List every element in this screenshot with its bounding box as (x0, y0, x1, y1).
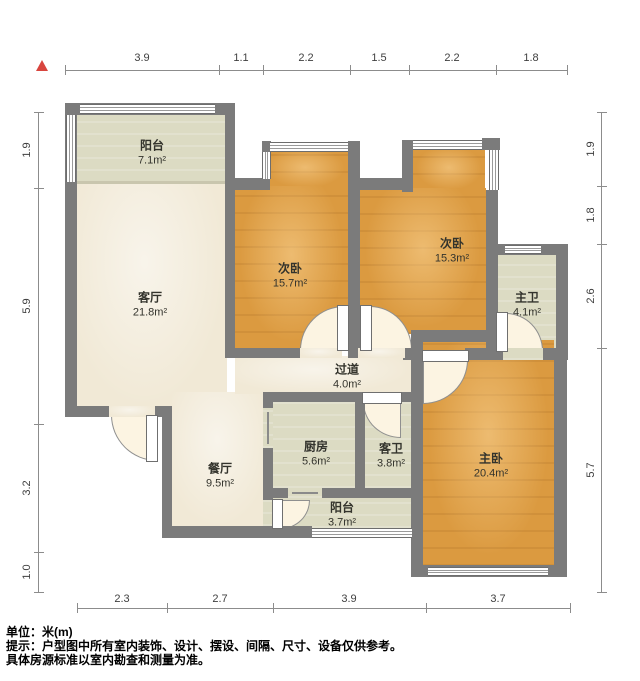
wall-bedroom-left-top (225, 178, 270, 190)
dim-tick (77, 603, 78, 613)
dim-tick (263, 65, 264, 75)
wall-master-top-a (403, 348, 423, 360)
floor-bedroom-left-bay (262, 151, 348, 190)
master-bath-door-leaf (496, 312, 508, 352)
floor-dining-room (172, 392, 273, 528)
wall-kitchen-bottom-left (263, 488, 290, 498)
dim-tick (34, 112, 44, 113)
room-area: 3.7m² (328, 516, 356, 530)
dim-left-2: 3.2 (21, 473, 33, 503)
wall-dining-bottom (162, 526, 312, 538)
dim-bottom-0: 2.3 (114, 593, 129, 605)
wall-master-left (411, 330, 423, 577)
wall-right-upper (556, 244, 568, 360)
disclaimer-line-1: 提示：户型图中所有室内装饰、设计、摆设、间隔、尺寸、设备仅供参考。 (6, 639, 402, 653)
dim-tick (273, 603, 274, 613)
floor-hallway (235, 356, 411, 394)
dim-line-top (65, 70, 568, 71)
room-label-bedroom-right: 次卧 15.3m² (435, 237, 469, 266)
room-area: 15.7m² (273, 277, 307, 291)
floorplan-canvas: 阳台 7.1m² 客厅 21.8m² 次卧 15.7m² 次卧 15.3m² 主… (0, 0, 640, 681)
guest-bath-door-leaf (362, 392, 402, 404)
room-label-guest-bath: 客卫 3.8m² (377, 442, 405, 471)
room-name: 次卧 (435, 237, 469, 252)
room-name: 次卧 (273, 262, 307, 277)
unit-note: 单位：米(m) (6, 625, 402, 639)
dim-left-1: 5.9 (21, 291, 33, 321)
master-bedroom-door-leaf (422, 350, 469, 362)
dim-tick (167, 603, 168, 613)
dim-bottom-1: 2.7 (212, 593, 227, 605)
kitchen-slide-door-line (267, 412, 269, 444)
dim-right-3: 5.7 (585, 455, 597, 485)
dim-tick (597, 186, 607, 187)
north-arrow-icon (36, 60, 48, 71)
dim-right-1: 1.8 (585, 200, 597, 230)
window-master-bath (505, 245, 541, 254)
disclaimer-line-2: 具体房源标准以室内勘查和测量为准。 (6, 653, 402, 667)
bedroom-right-door-leaf (360, 305, 372, 351)
room-label-master-bedroom: 主卧 20.4m² (474, 452, 508, 481)
wall-bedroom-left-bottom (225, 348, 302, 358)
room-label-bedroom-left: 次卧 15.7m² (273, 262, 307, 291)
wall-kitchen-bath-divider (355, 400, 365, 488)
wall-bedrooms-divider (348, 141, 360, 358)
kitchen-balcony-door-line (292, 492, 318, 494)
wall-bay2-post-left (402, 140, 413, 192)
room-label-balcony-top: 阳台 7.1m² (138, 139, 166, 168)
dim-top-4: 2.2 (444, 52, 459, 64)
dim-tick (597, 112, 607, 113)
dim-bottom-3: 3.7 (490, 593, 505, 605)
dim-right-2: 2.6 (585, 281, 597, 311)
dim-tick (426, 603, 427, 613)
dim-left-3: 1.0 (21, 557, 33, 587)
room-area: 3.8m² (377, 457, 405, 471)
wall-master-right (554, 348, 567, 577)
dim-bottom-2: 3.9 (341, 593, 356, 605)
room-label-dining: 餐厅 9.5m² (206, 462, 234, 491)
window-bedroom-right-bay (413, 140, 482, 150)
wall-bay-gap-bottom (358, 178, 404, 190)
dim-line-left (38, 112, 39, 592)
dim-top-1: 1.1 (233, 52, 248, 64)
dim-tick (496, 65, 497, 75)
room-name: 主卫 (513, 291, 541, 306)
window-balcony-left (66, 115, 76, 182)
room-area: 9.5m² (206, 477, 234, 491)
dim-right-0: 1.9 (585, 134, 597, 164)
wall-bedroom-right-bottom (411, 330, 497, 342)
room-name: 客卫 (377, 442, 405, 457)
window-bedroom-right-bay-side (489, 150, 499, 190)
room-area: 20.4m² (474, 467, 508, 481)
dim-top-2: 2.2 (298, 52, 313, 64)
wall-kitchen-bottom-right (320, 488, 423, 498)
dim-left-0: 1.9 (21, 135, 33, 165)
floor-bedroom-right-bay (413, 150, 485, 192)
room-area: 7.1m² (138, 154, 166, 168)
room-name: 餐厅 (206, 462, 234, 477)
room-label-living: 客厅 21.8m² (133, 291, 167, 320)
room-name: 阳台 (328, 501, 356, 516)
window-bedroom-left-bay (270, 142, 348, 152)
room-name: 过道 (333, 363, 361, 378)
wall-bay2-post-right (482, 138, 500, 150)
room-name: 厨房 (302, 440, 330, 455)
window-balcony-top (80, 104, 215, 114)
dim-line-bottom (77, 608, 571, 609)
entry-door-leaf (146, 415, 158, 462)
room-area: 5.6m² (302, 455, 330, 469)
dim-tick (567, 65, 568, 75)
balcony-living-divider (77, 181, 225, 184)
master-bath-door-opening (503, 348, 543, 360)
dim-tick (34, 188, 44, 189)
wall-living-bedroom-divider (225, 103, 235, 348)
footer-notes: 单位：米(m) 提示：户型图中所有室内装饰、设计、摆设、间隔、尺寸、设备仅供参考… (6, 625, 402, 667)
dim-tick (34, 592, 44, 593)
dim-line-right (601, 112, 602, 592)
dim-top-3: 1.5 (371, 52, 386, 64)
dim-tick (34, 552, 44, 553)
window-bedroom-left-bay-side (262, 152, 271, 179)
window-balcony-bottom (312, 528, 412, 538)
wall-entry-left (65, 406, 111, 417)
room-label-balcony-bottom: 阳台 3.7m² (328, 501, 356, 530)
dim-top-5: 1.8 (523, 52, 538, 64)
wall-corridor-bottom-right (399, 392, 423, 402)
dim-top-0: 3.9 (134, 52, 149, 64)
dim-tick (219, 65, 220, 75)
room-label-kitchen: 厨房 5.6m² (302, 440, 330, 469)
bedroom-left-door-opening (300, 348, 342, 358)
dim-tick (350, 65, 351, 75)
wall-dining-left (162, 406, 172, 538)
bedroom-left-door-leaf (337, 305, 349, 351)
dim-tick (597, 592, 607, 593)
dim-tick (409, 65, 410, 75)
wall-corridor-bottom-left (263, 392, 366, 402)
room-name: 阳台 (138, 139, 166, 154)
room-name: 客厅 (133, 291, 167, 306)
room-label-master-bath: 主卫 4.1m² (513, 291, 541, 320)
balcony-bottom-door-leaf (272, 499, 283, 529)
room-area: 4.1m² (513, 306, 541, 320)
dim-tick (34, 424, 44, 425)
room-name: 主卧 (474, 452, 508, 467)
dim-tick (65, 65, 66, 75)
dim-tick (570, 603, 571, 613)
room-area: 15.3m² (435, 252, 469, 266)
room-area: 4.0m² (333, 378, 361, 392)
dim-tick (597, 348, 607, 349)
window-master-bedroom (428, 567, 548, 576)
room-label-hallway: 过道 4.0m² (333, 363, 361, 392)
dim-tick (597, 244, 607, 245)
room-area: 21.8m² (133, 306, 167, 320)
